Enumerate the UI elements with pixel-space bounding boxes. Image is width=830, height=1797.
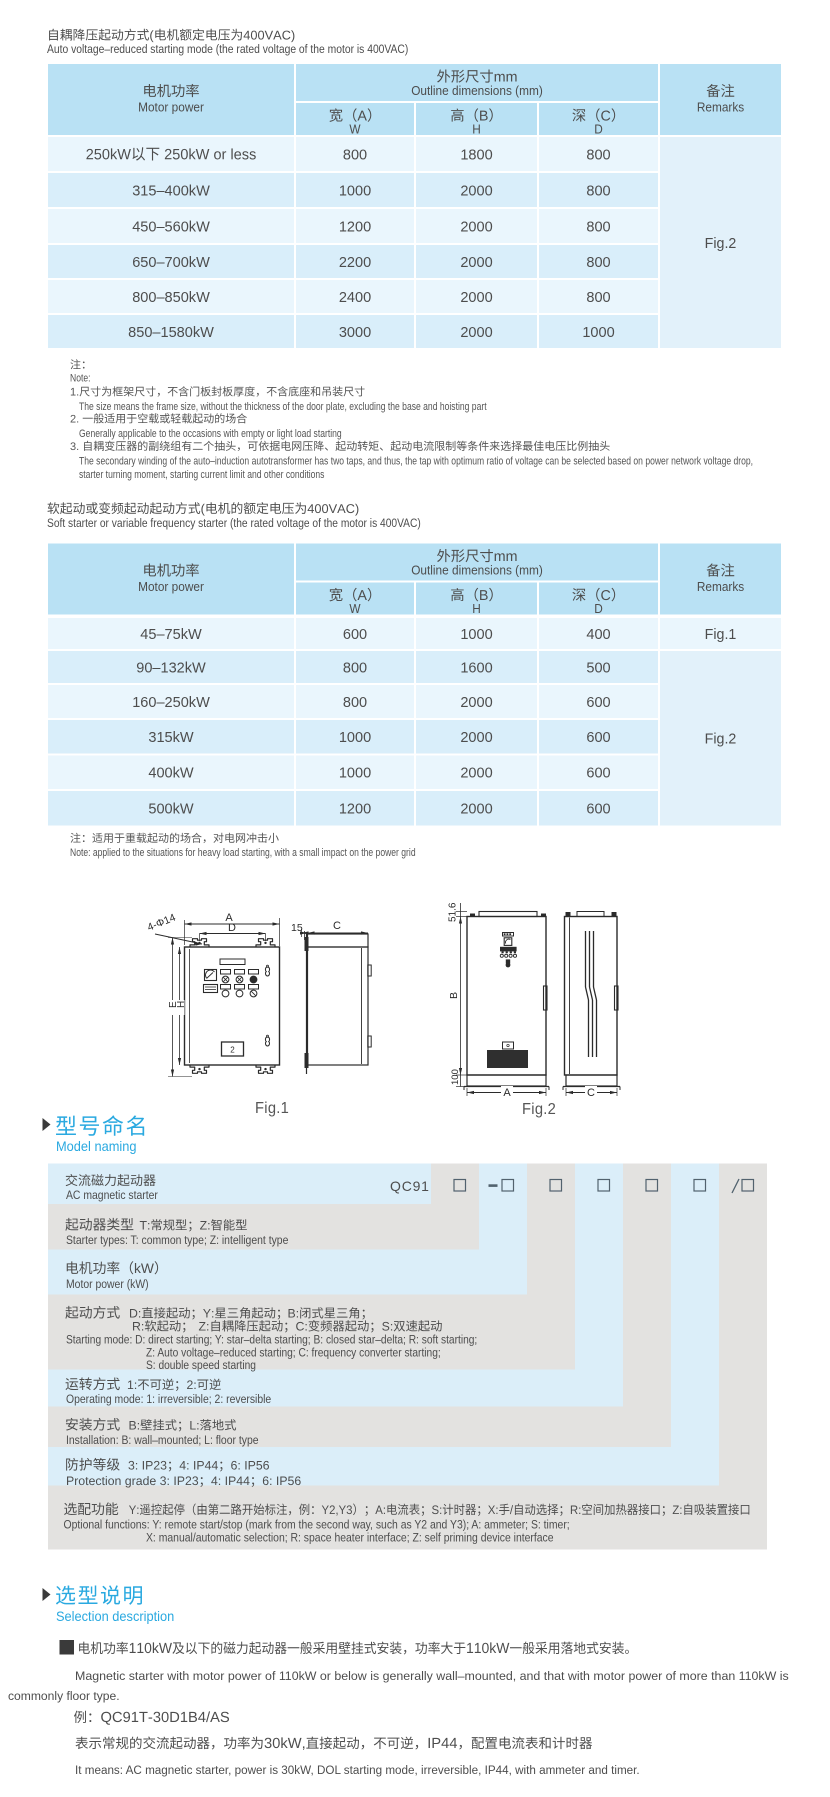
svg-text:1200: 1200: [339, 801, 371, 817]
svg-text:Note:: Note:: [70, 373, 91, 385]
svg-text:800: 800: [586, 183, 610, 199]
svg-text:Starter types: T: common type;: Starter types: T: common type; Z: intell…: [66, 1234, 288, 1247]
svg-text:Fig.1: Fig.1: [705, 626, 737, 642]
svg-text:Fig.2: Fig.2: [705, 731, 737, 747]
svg-text:H: H: [176, 1001, 187, 1008]
svg-text:400: 400: [586, 627, 610, 643]
svg-text:2000: 2000: [460, 765, 492, 781]
svg-text:A: A: [503, 1087, 511, 1099]
svg-text:H: H: [472, 122, 481, 136]
svg-text:Fig.2: Fig.2: [522, 1101, 556, 1118]
svg-text:2000: 2000: [460, 730, 492, 746]
svg-text:800: 800: [343, 660, 367, 676]
svg-text:800: 800: [586, 147, 610, 163]
svg-text:1000: 1000: [339, 730, 371, 746]
svg-text:starter turning moment, starti: starter turning moment, starting current…: [79, 469, 325, 481]
svg-text:2200: 2200: [339, 255, 371, 271]
svg-text:600: 600: [343, 627, 367, 643]
svg-text:Z: Auto voltage–reduced starti: Z: Auto voltage–reduced starting; C: fre…: [146, 1347, 441, 1360]
svg-text:600: 600: [586, 801, 610, 817]
svg-text:100: 100: [450, 1069, 461, 1085]
svg-text:1000: 1000: [582, 325, 614, 341]
svg-text:2000: 2000: [460, 695, 492, 711]
svg-text:W: W: [349, 602, 361, 616]
svg-text:400kW: 400kW: [148, 765, 193, 781]
svg-text:Selection description: Selection description: [56, 1609, 174, 1624]
svg-text:Installation: B: wall–mounted;: Installation: B: wall–mounted; L: floor …: [66, 1434, 259, 1447]
svg-text:800: 800: [343, 695, 367, 711]
svg-text:45–75kW: 45–75kW: [140, 627, 201, 643]
svg-text:1000: 1000: [339, 765, 371, 781]
svg-text:2000: 2000: [460, 255, 492, 271]
svg-text:4-Φ14: 4-Φ14: [146, 912, 178, 934]
svg-text:X: manual/automatic selection;: X: manual/automatic selection; R: space …: [146, 1532, 554, 1545]
svg-text:Fig.2: Fig.2: [705, 235, 737, 251]
svg-text:450–560kW: 450–560kW: [132, 219, 210, 235]
svg-text:D: D: [594, 602, 603, 616]
svg-text:315kW: 315kW: [148, 730, 193, 746]
svg-text:Remarks: Remarks: [697, 100, 744, 114]
svg-text:1000: 1000: [339, 183, 371, 199]
svg-text:850–1580kW: 850–1580kW: [128, 325, 214, 341]
svg-text:The size means the frame size,: The size means the frame size, without t…: [79, 401, 487, 413]
svg-text:600: 600: [586, 695, 610, 711]
svg-text:2: 2: [230, 1046, 235, 1055]
svg-text:Remarks: Remarks: [697, 580, 744, 594]
svg-text:800: 800: [343, 147, 367, 163]
svg-text:Magnetic starter with motor po: Magnetic starter with motor power of 110…: [75, 1669, 789, 1683]
svg-text:2400: 2400: [339, 290, 371, 306]
svg-text:D: D: [228, 922, 236, 934]
svg-text:51.6: 51.6: [448, 902, 459, 922]
svg-text:500: 500: [586, 660, 610, 676]
svg-text:800–850kW: 800–850kW: [132, 290, 210, 306]
svg-text:650–700kW: 650–700kW: [132, 255, 210, 271]
svg-text:1600: 1600: [460, 660, 492, 676]
svg-text:Outline dimensions (mm): Outline dimensions (mm): [411, 84, 543, 98]
svg-text:600: 600: [586, 765, 610, 781]
svg-text:Model naming: Model naming: [56, 1139, 136, 1154]
svg-text:1000: 1000: [460, 627, 492, 643]
svg-text:Operating mode: 1: irreversibl: Operating mode: 1: irreversible; 2: reve…: [66, 1393, 271, 1406]
svg-text:Motor power: Motor power: [138, 580, 204, 594]
svg-text:500kW: 500kW: [148, 801, 193, 817]
svg-text:3000: 3000: [339, 325, 371, 341]
svg-text:Fig.1: Fig.1: [255, 1100, 289, 1117]
svg-text:commonly floor type.: commonly floor type.: [8, 1689, 120, 1703]
svg-text:Motor power (kW): Motor power (kW): [66, 1278, 149, 1291]
svg-text:800: 800: [586, 290, 610, 306]
svg-text:2000: 2000: [460, 219, 492, 235]
svg-text:Starting mode: D: direct start: Starting mode: D: direct starting; Y: st…: [66, 1334, 477, 1347]
svg-text:800: 800: [586, 219, 610, 235]
svg-text:1800: 1800: [460, 147, 492, 163]
svg-text:S: double speed starting: S: double speed starting: [146, 1359, 256, 1372]
svg-text:2000: 2000: [460, 290, 492, 306]
svg-text:It means: AC magnetic starter,: It means: AC magnetic starter, power is …: [75, 1763, 640, 1777]
svg-text:Outline dimensions (mm): Outline dimensions (mm): [411, 563, 543, 577]
svg-text:B: B: [448, 992, 460, 999]
svg-text:QC91: QC91: [390, 1178, 430, 1194]
svg-text:1200: 1200: [339, 219, 371, 235]
svg-text:AC magnetic starter: AC magnetic starter: [66, 1189, 158, 1202]
svg-text:90–132kW: 90–132kW: [136, 660, 206, 676]
svg-text:C: C: [587, 1087, 595, 1099]
svg-text:800: 800: [586, 255, 610, 271]
svg-text:Auto voltage–reduced starting: Auto voltage–reduced starting mode (the …: [47, 43, 409, 56]
svg-text:2000: 2000: [460, 325, 492, 341]
svg-text:The secondary winding of the a: The secondary winding of the auto–induct…: [79, 456, 753, 468]
svg-text:H: H: [472, 602, 481, 616]
svg-text:D: D: [594, 122, 603, 136]
svg-text:2000: 2000: [460, 183, 492, 199]
svg-text:Generally applicable to the oc: Generally applicable to the occasions wi…: [79, 428, 342, 440]
svg-text:Optional functions: Y: remote: Optional functions: Y: remote start/stop…: [64, 1519, 570, 1532]
svg-text:C: C: [333, 920, 341, 932]
svg-text:Motor power: Motor power: [138, 100, 204, 114]
svg-text:2000: 2000: [460, 801, 492, 817]
svg-text:600: 600: [586, 730, 610, 746]
svg-text:315–400kW: 315–400kW: [132, 183, 210, 199]
svg-text:Soft starter or variable frequ: Soft starter or variable frequency start…: [47, 517, 421, 530]
svg-text:W: W: [349, 122, 361, 136]
svg-text:Note: applied to the situation: Note: applied to the situations for heav…: [70, 847, 416, 859]
svg-text:160–250kW: 160–250kW: [132, 695, 210, 711]
